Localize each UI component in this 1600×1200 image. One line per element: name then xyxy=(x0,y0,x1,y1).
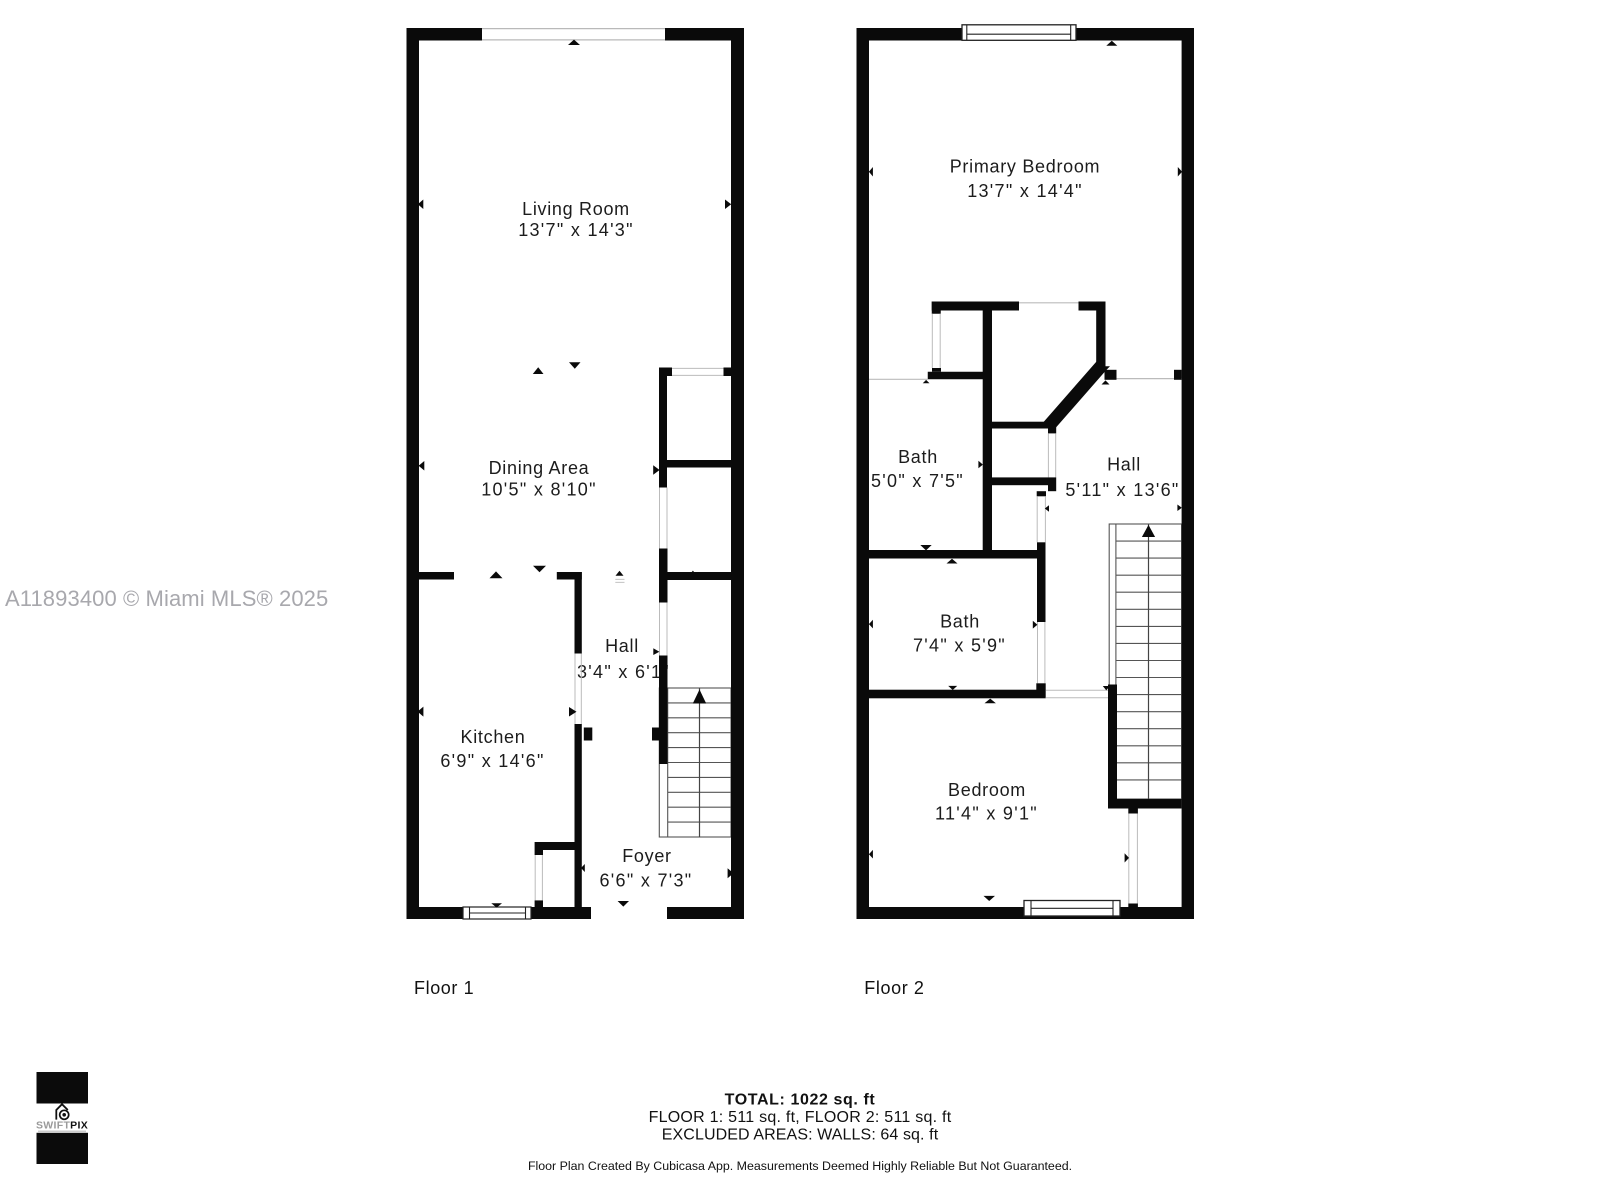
svg-text:EXCLUDED AREAS: WALLS: 64 sq.: EXCLUDED AREAS: WALLS: 64 sq. ft xyxy=(662,1127,939,1144)
svg-text:Kitchen: Kitchen xyxy=(461,727,526,747)
svg-text:Bedroom: Bedroom xyxy=(948,780,1026,800)
svg-text:6'6" x 7'3": 6'6" x 7'3" xyxy=(600,871,693,891)
svg-text:Hall: Hall xyxy=(605,636,639,656)
svg-text:7'4" x 5'9": 7'4" x 5'9" xyxy=(913,636,1006,656)
svg-text:10'5" x 8'10": 10'5" x 8'10" xyxy=(481,480,597,500)
svg-text:Dining Area: Dining Area xyxy=(489,458,590,478)
svg-text:Primary Bedroom: Primary Bedroom xyxy=(950,157,1101,177)
svg-text:Living Room: Living Room xyxy=(522,199,630,219)
svg-text:13'7" x 14'3": 13'7" x 14'3" xyxy=(518,220,634,240)
svg-text:3'4" x 6'1": 3'4" x 6'1" xyxy=(577,662,670,682)
svg-text:Bath: Bath xyxy=(940,612,980,632)
svg-text:SWIFTPIX: SWIFTPIX xyxy=(36,1119,88,1131)
svg-text:6'9" x 14'6": 6'9" x 14'6" xyxy=(440,751,544,771)
svg-text:Floor Plan Created By Cubicasa: Floor Plan Created By Cubicasa App. Meas… xyxy=(528,1159,1072,1173)
svg-text:TOTAL: 1022 sq. ft: TOTAL: 1022 sq. ft xyxy=(725,1091,876,1108)
svg-text:5'0" x 7'5": 5'0" x 7'5" xyxy=(871,471,964,491)
svg-text:A11893400 © Miami MLS® 2025: A11893400 © Miami MLS® 2025 xyxy=(5,586,328,611)
svg-text:FLOOR 1: 511 sq. ft, FLOOR 2:: FLOOR 1: 511 sq. ft, FLOOR 2: 511 sq. ft xyxy=(649,1109,952,1126)
svg-text:Floor 1: Floor 1 xyxy=(414,978,474,998)
svg-text:Bath: Bath xyxy=(898,447,938,467)
svg-text:Foyer: Foyer xyxy=(622,846,672,866)
svg-text:5'11" x 13'6": 5'11" x 13'6" xyxy=(1065,480,1179,500)
svg-text:13'7" x 14'4": 13'7" x 14'4" xyxy=(967,181,1083,201)
svg-text:Hall: Hall xyxy=(1107,455,1141,475)
svg-text:11'4" x 9'1": 11'4" x 9'1" xyxy=(935,804,1038,824)
svg-text:Floor 2: Floor 2 xyxy=(864,978,924,998)
